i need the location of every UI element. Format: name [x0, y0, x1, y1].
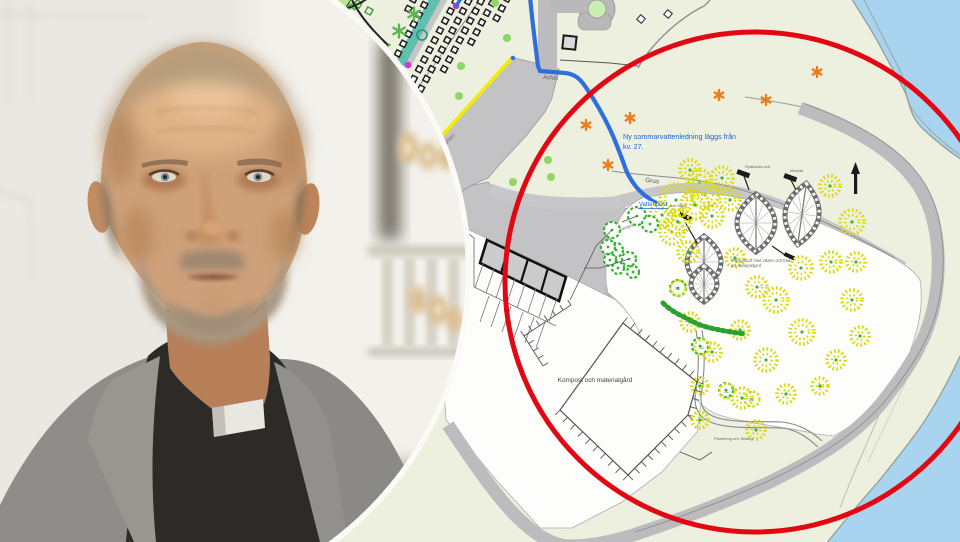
- svg-text:körsbär: körsbär: [790, 168, 804, 173]
- svg-text:Vattenpost: Vattenpost: [639, 202, 668, 208]
- svg-text:3L: 3L: [724, 389, 730, 394]
- svg-text:och bänk: och bänk: [670, 203, 686, 208]
- svg-text:Rydbacks och: Rydbacks och: [745, 164, 770, 169]
- svg-text:Asfalt: Asfalt: [543, 75, 559, 82]
- svg-text:3L: 3L: [749, 397, 755, 402]
- svg-text:3L: 3L: [675, 286, 681, 291]
- svg-text:kv. 27.: kv. 27.: [623, 142, 644, 151]
- svg-text:3L: 3L: [699, 345, 705, 350]
- svg-text:Ny sommarvattenledning läggs f: Ny sommarvattenledning läggs från: [623, 132, 736, 141]
- svg-text:ref. kompostjord: ref. kompostjord: [731, 263, 762, 268]
- svg-text:Kompost och materialgård: Kompost och materialgård: [558, 376, 633, 384]
- svg-text:Plantering enl. förslag: Plantering enl. förslag: [714, 436, 753, 441]
